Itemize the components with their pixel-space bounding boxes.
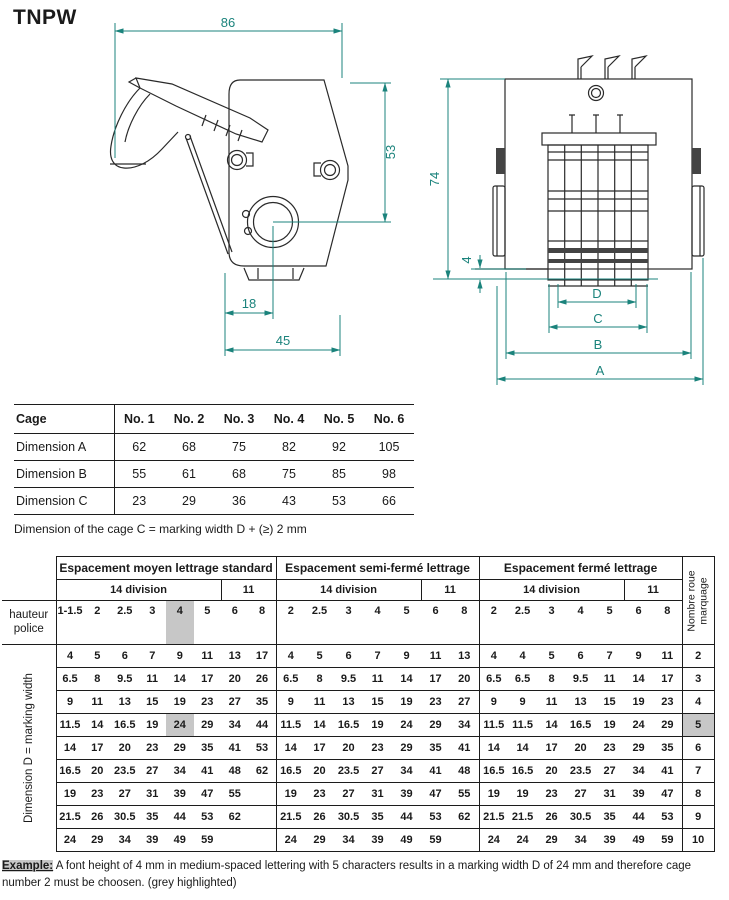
cage-row-label: Dimension C — [14, 488, 114, 515]
page-title: TNPW — [13, 6, 77, 30]
marking-width-cell: 23 — [139, 737, 167, 760]
marking-width-cell: 11.5 — [479, 714, 508, 737]
marking-width-cell: 9 — [479, 691, 508, 714]
marking-width-cell: 62 — [450, 806, 479, 829]
cage-value-cell: 29 — [164, 488, 214, 515]
section-title-row: Espacement moyen lettrage standard Espac… — [2, 557, 714, 580]
marking-width-cell: 39 — [363, 829, 392, 852]
marking-width-cell: 4 — [508, 645, 537, 668]
marking-width-cell: 14 — [56, 737, 84, 760]
cage-note: Dimension of the cage C = marking width … — [14, 522, 307, 536]
wheel-count-cell: 3 — [682, 668, 714, 691]
marking-width-cell: 59 — [653, 829, 682, 852]
marking-width-cell: 16.5 — [508, 760, 537, 783]
marking-width-cell: 19 — [139, 714, 167, 737]
marking-width-cell: 39 — [166, 783, 194, 806]
marking-width-cell: 14 — [305, 714, 334, 737]
spacer-cell — [2, 557, 56, 580]
marking-width-cell: 11 — [363, 668, 392, 691]
font-height-header-cell: 6 — [221, 601, 249, 645]
stamp-body-outline — [228, 80, 349, 280]
marking-width-cell: 23.5 — [111, 760, 139, 783]
cage-value-cell: 105 — [364, 434, 414, 461]
font-height-header-cell: 1-1.5 — [56, 601, 84, 645]
marking-width-cell: 35 — [139, 806, 167, 829]
marking-width-cell: 19 — [624, 691, 653, 714]
marking-width-row: Dimension D = marking width4567911131745… — [2, 645, 714, 668]
dim-right-height-label: 53 — [383, 145, 398, 159]
marking-width-cell: 11 — [84, 691, 112, 714]
marking-width-cell: 20 — [450, 668, 479, 691]
marking-width-cell: 16.5 — [479, 760, 508, 783]
wheel-count-cell: 2 — [682, 645, 714, 668]
cage-value-cell: 85 — [314, 461, 364, 488]
marking-width-cell: 35 — [653, 737, 682, 760]
marking-width-cell: 6.5 — [276, 668, 305, 691]
marking-width-cell: 19 — [508, 783, 537, 806]
marking-width-cell: 11 — [194, 645, 222, 668]
dim-left-height-label: 74 — [427, 172, 442, 186]
marking-width-cell: 29 — [84, 829, 112, 852]
marking-width-cell: 9.5 — [334, 668, 363, 691]
marking-width-cell: 47 — [421, 783, 450, 806]
marking-width-cell: 30.5 — [566, 806, 595, 829]
marking-width-cell: 26 — [305, 806, 334, 829]
font-height-header-cell: 8 — [653, 601, 682, 645]
font-height-axis-label: hauteur police — [2, 601, 56, 645]
marking-width-cell: 11.5 — [56, 714, 84, 737]
marking-width-cell: 9.5 — [566, 668, 595, 691]
marking-width-cell: 29 — [537, 829, 566, 852]
spacer-cell — [2, 580, 56, 601]
marking-width-cell: 62 — [249, 760, 277, 783]
font-height-header-cell: 3 — [139, 601, 167, 645]
font-height-header-cell: 8 — [249, 601, 277, 645]
marking-width-row: 6.589.511141720266.589.5111417206.56.589… — [2, 668, 714, 691]
marking-width-cell: 14 — [276, 737, 305, 760]
section-title: Espacement semi-fermé lettrage — [276, 557, 479, 580]
marking-width-cell: 34 — [392, 760, 421, 783]
marking-width-cell: 23 — [305, 783, 334, 806]
cage-value-cell: 62 — [114, 434, 164, 461]
marking-width-cell: 6.5 — [508, 668, 537, 691]
marking-width-cell: 23.5 — [566, 760, 595, 783]
font-height-header-cell: 6 — [421, 601, 450, 645]
division-group-row: 14 division 11 14 division 11 14 divisio… — [2, 580, 714, 601]
marking-width-cell: 17 — [537, 737, 566, 760]
font-height-header-cell: 8 — [450, 601, 479, 645]
marking-width-cell: 34 — [221, 714, 249, 737]
marking-width-cell: 15 — [363, 691, 392, 714]
marking-width-cell: 31 — [363, 783, 392, 806]
marking-width-cell: 48 — [221, 760, 249, 783]
marking-width-cell: 27 — [139, 760, 167, 783]
marking-width-cell: 14 — [537, 714, 566, 737]
font-height-header-cell: 6 — [624, 601, 653, 645]
marking-width-cell: 8 — [537, 668, 566, 691]
marking-width-cell: 41 — [450, 737, 479, 760]
marking-width-cell: 34 — [566, 829, 595, 852]
dim-bottom-width-label: 45 — [276, 333, 290, 348]
dim-top-width-label: 86 — [221, 18, 235, 30]
dim-c-label: C — [593, 311, 602, 326]
marking-width-cell: 23 — [194, 691, 222, 714]
marking-width-cell: 7 — [595, 645, 624, 668]
marking-width-cell: 19 — [479, 783, 508, 806]
marking-width-cell: 20 — [84, 760, 112, 783]
cage-value-cell: 66 — [364, 488, 414, 515]
marking-width-cell: 13 — [450, 645, 479, 668]
marking-width-cell: 23 — [84, 783, 112, 806]
marking-width-row: 2429343949592429343949592424293439495910 — [2, 829, 714, 852]
marking-width-cell: 29 — [392, 737, 421, 760]
marking-width-cell: 5 — [305, 645, 334, 668]
marking-width-cell: 16.5 — [334, 714, 363, 737]
wheel-count-cell: 4 — [682, 691, 714, 714]
marking-width-row: 1923273139475519232731394755191923273139… — [2, 783, 714, 806]
division-group: 14 division — [479, 580, 624, 601]
marking-width-cell: 14 — [392, 668, 421, 691]
wheel-count-cell: 9 — [682, 806, 714, 829]
marking-width-cell: 41 — [421, 760, 450, 783]
marking-width-cell: 34 — [334, 829, 363, 852]
cage-value-cell: 68 — [214, 461, 264, 488]
marking-width-cell: 21.5 — [508, 806, 537, 829]
marking-width-row: 11.51416.5192429344411.51416.51924293411… — [2, 714, 714, 737]
marking-width-cell: 6 — [111, 645, 139, 668]
marking-width-cell: 27 — [595, 760, 624, 783]
marking-width-cell: 17 — [421, 668, 450, 691]
marking-width-cell: 30.5 — [111, 806, 139, 829]
marking-width-cell: 29 — [166, 737, 194, 760]
marking-width-cell: 35 — [363, 806, 392, 829]
marking-width-cell: 59 — [194, 829, 222, 852]
division-group: 14 division — [56, 580, 221, 601]
marking-width-cell: 29 — [624, 737, 653, 760]
marking-width-cell: 34 — [111, 829, 139, 852]
marking-width-cell: 16.5 — [56, 760, 84, 783]
font-height-header-cell: 2.5 — [508, 601, 537, 645]
marking-width-cell: 24 — [479, 829, 508, 852]
marking-width-cell: 44 — [624, 806, 653, 829]
marking-width-cell: 13 — [566, 691, 595, 714]
cage-header-cell: No. 3 — [214, 405, 264, 434]
marking-width-cell: 4 — [479, 645, 508, 668]
cage-header-cell: Cage — [14, 405, 114, 434]
marking-width-cell: 35 — [249, 691, 277, 714]
marking-width-cell: 9 — [166, 645, 194, 668]
marking-width-cell: 9 — [508, 691, 537, 714]
marking-width-cell: 11 — [139, 668, 167, 691]
marking-width-cell: 17 — [194, 668, 222, 691]
marking-width-cell: 17 — [653, 668, 682, 691]
cage-value-cell: 75 — [264, 461, 314, 488]
marking-width-cell: 21.5 — [56, 806, 84, 829]
marking-width-cell: 39 — [392, 783, 421, 806]
division-group: 14 division — [276, 580, 421, 601]
section-title: Espacement moyen lettrage standard — [56, 557, 276, 580]
marking-width-cell: 11 — [537, 691, 566, 714]
marking-width-cell: 23.5 — [334, 760, 363, 783]
wheel-count-cell: 5 — [682, 714, 714, 737]
marking-width-cell: 26 — [537, 806, 566, 829]
marking-width-cell: 23 — [595, 737, 624, 760]
cage-table: Cage No. 1 No. 2 No. 3 No. 4 No. 5 No. 6… — [14, 404, 414, 515]
marking-width-cell: 34 — [166, 760, 194, 783]
marking-width-cell: 41 — [194, 760, 222, 783]
cage-row: Dimension C232936435366 — [14, 488, 414, 515]
marking-width-cell: 29 — [305, 829, 334, 852]
dimension-d-axis-cell: Dimension D = marking width — [2, 645, 56, 852]
marking-width-cell: 6.5 — [56, 668, 84, 691]
marking-width-cell — [249, 783, 277, 806]
marking-width-cell: 9 — [624, 645, 653, 668]
marking-width-cell: 20 — [305, 760, 334, 783]
marking-width-cell: 23 — [421, 691, 450, 714]
marking-width-cell: 31 — [139, 783, 167, 806]
marking-width-cell: 24 — [166, 714, 194, 737]
marking-width-cell: 14 — [479, 737, 508, 760]
marking-width-cell: 53 — [194, 806, 222, 829]
marking-width-cell: 6 — [566, 645, 595, 668]
marking-width-cell: 53 — [249, 737, 277, 760]
font-height-header-cell: 5 — [194, 601, 222, 645]
wheel-count-cell: 6 — [682, 737, 714, 760]
marking-width-cell: 4 — [56, 645, 84, 668]
marking-width-cell: 13 — [334, 691, 363, 714]
marking-width-cell: 9.5 — [111, 668, 139, 691]
marking-width-cell: 16.5 — [111, 714, 139, 737]
cage-row: Dimension A6268758292105 — [14, 434, 414, 461]
marking-width-cell: 47 — [194, 783, 222, 806]
marking-width-cell: 19 — [363, 714, 392, 737]
drawing-front-view: 74 4 D C B A — [426, 36, 726, 398]
spacing-table-body: Dimension D = marking width4567911131745… — [2, 645, 714, 852]
marking-width-cell: 19 — [276, 783, 305, 806]
marking-width-cell: 20 — [221, 668, 249, 691]
marking-width-cell: 34 — [450, 714, 479, 737]
cage-value-cell: 82 — [264, 434, 314, 461]
marking-width-cell: 39 — [624, 783, 653, 806]
marking-width-cell: 19 — [166, 691, 194, 714]
font-height-header-cell: 2 — [84, 601, 112, 645]
division-group: 11 — [421, 580, 479, 601]
wheel-count-header: Nombre roue marquage — [682, 557, 714, 645]
marking-width-row: 9111315192327359111315192327991113151923… — [2, 691, 714, 714]
cage-header-cell: No. 6 — [364, 405, 414, 434]
marking-width-cell: 23 — [653, 691, 682, 714]
marking-width-cell: 27 — [450, 691, 479, 714]
marking-width-cell: 27 — [363, 760, 392, 783]
marking-width-cell: 14 — [166, 668, 194, 691]
dim-d-label: D — [592, 286, 601, 301]
marking-width-cell: 11.5 — [508, 714, 537, 737]
marking-width-cell: 35 — [595, 806, 624, 829]
marking-width-cell: 14 — [624, 668, 653, 691]
font-height-header-cell: 4 — [166, 601, 194, 645]
marking-width-cell: 20 — [334, 737, 363, 760]
marking-width-cell — [450, 829, 479, 852]
marking-width-cell: 48 — [450, 760, 479, 783]
marking-width-cell: 39 — [139, 829, 167, 852]
cage-row: Dimension B556168758598 — [14, 461, 414, 488]
marking-width-cell: 19 — [595, 714, 624, 737]
marking-width-cell: 27 — [334, 783, 363, 806]
font-height-row: hauteur police 1-1.522.53456822.53456822… — [2, 601, 714, 645]
marking-width-cell: 62 — [221, 806, 249, 829]
marking-width-cell: 49 — [624, 829, 653, 852]
font-height-header-cell: 4 — [566, 601, 595, 645]
font-height-header-cell: 3 — [334, 601, 363, 645]
font-height-header-cell: 2 — [276, 601, 305, 645]
cage-row-label: Dimension B — [14, 461, 114, 488]
marking-width-cell: 24 — [508, 829, 537, 852]
example-text: A font height of 4 mm in medium-spaced l… — [2, 860, 691, 889]
marking-width-cell: 16.5 — [566, 714, 595, 737]
cage-header-cell: No. 2 — [164, 405, 214, 434]
marking-width-cell: 41 — [221, 737, 249, 760]
marking-width-cell: 20 — [537, 760, 566, 783]
marking-width-cell: 7 — [363, 645, 392, 668]
font-height-header-cell: 3 — [537, 601, 566, 645]
section-title: Espacement fermé lettrage — [479, 557, 682, 580]
marking-width-cell: 8 — [305, 668, 334, 691]
marking-width-cell: 47 — [653, 783, 682, 806]
marking-width-cell: 9 — [392, 645, 421, 668]
cage-value-cell: 92 — [314, 434, 364, 461]
marking-width-cell: 53 — [421, 806, 450, 829]
cage-header-cell: No. 5 — [314, 405, 364, 434]
cage-value-cell: 23 — [114, 488, 164, 515]
cage-value-cell: 43 — [264, 488, 314, 515]
wheel-count-cell: 10 — [682, 829, 714, 852]
marking-width-cell: 26 — [84, 806, 112, 829]
dim-b-label: B — [594, 337, 603, 352]
font-height-header-cell: 2 — [479, 601, 508, 645]
dim-bottom-offset-label: 18 — [242, 296, 256, 311]
example-label: Example: — [2, 860, 53, 872]
marking-width-cell: 23 — [537, 783, 566, 806]
marking-width-cell: 27 — [221, 691, 249, 714]
dimension-d-axis-label: Dimension D = marking width — [23, 673, 35, 823]
marking-width-cell: 5 — [84, 645, 112, 668]
marking-width-cell: 14 — [84, 714, 112, 737]
cage-value-cell: 75 — [214, 434, 264, 461]
marking-width-cell: 4 — [276, 645, 305, 668]
marking-width-row: 16.52023.5273441486216.52023.52734414816… — [2, 760, 714, 783]
font-height-header-cell: 5 — [392, 601, 421, 645]
marking-width-cell: 26 — [249, 668, 277, 691]
marking-width-cell: 15 — [139, 691, 167, 714]
marking-width-cell: 11.5 — [276, 714, 305, 737]
cage-value-cell: 53 — [314, 488, 364, 515]
marking-width-cell: 11 — [653, 645, 682, 668]
marking-width-row: 1417202329354153141720232935411414172023… — [2, 737, 714, 760]
division-group: 11 — [221, 580, 276, 601]
marking-width-cell: 14 — [508, 737, 537, 760]
cage-row-label: Dimension A — [14, 434, 114, 461]
cage-value-cell: 98 — [364, 461, 414, 488]
marking-width-cell — [249, 829, 277, 852]
marking-width-cell: 6.5 — [479, 668, 508, 691]
cage-header-cell: No. 4 — [264, 405, 314, 434]
cage-value-cell: 55 — [114, 461, 164, 488]
marking-width-cell: 13 — [111, 691, 139, 714]
marking-width-cell: 49 — [166, 829, 194, 852]
drawing-side-view: 86 53 18 45 — [88, 18, 433, 396]
marking-width-cell: 27 — [111, 783, 139, 806]
marking-width-cell: 21.5 — [276, 806, 305, 829]
cage-header-cell: No. 1 — [114, 405, 164, 434]
cage-header-row: Cage No. 1 No. 2 No. 3 No. 4 No. 5 No. 6 — [14, 405, 414, 434]
division-group: 11 — [624, 580, 682, 601]
marking-width-cell: 29 — [653, 714, 682, 737]
marking-width-cell: 44 — [249, 714, 277, 737]
marking-width-cell: 17 — [249, 645, 277, 668]
wheel-count-cell: 7 — [682, 760, 714, 783]
wheel-count-header-label: Nombre roue marquage — [687, 568, 710, 634]
wheel-count-cell: 8 — [682, 783, 714, 806]
marking-width-cell: 19 — [56, 783, 84, 806]
dimension-lines — [433, 79, 703, 385]
marking-width-cell — [249, 806, 277, 829]
example-note: Example: A font height of 4 mm in medium… — [2, 858, 726, 891]
cage-value-cell: 68 — [164, 434, 214, 461]
marking-width-cell — [221, 829, 249, 852]
marking-width-cell: 9 — [56, 691, 84, 714]
marking-width-cell: 55 — [450, 783, 479, 806]
marking-width-cell: 55 — [221, 783, 249, 806]
marking-width-cell: 17 — [84, 737, 112, 760]
marking-width-cell: 16.5 — [276, 760, 305, 783]
marking-width-cell: 9 — [276, 691, 305, 714]
marking-width-cell: 27 — [566, 783, 595, 806]
datasheet-page: TNPW — [0, 0, 729, 900]
marking-width-cell: 23 — [363, 737, 392, 760]
marking-width-cell: 53 — [653, 806, 682, 829]
marking-width-cell: 11 — [595, 668, 624, 691]
marking-width-cell: 35 — [194, 737, 222, 760]
marking-width-cell: 20 — [111, 737, 139, 760]
marking-width-cell: 31 — [595, 783, 624, 806]
marking-width-cell: 11 — [421, 645, 450, 668]
marking-width-cell: 5 — [537, 645, 566, 668]
marking-width-cell: 30.5 — [334, 806, 363, 829]
marking-width-cell: 13 — [221, 645, 249, 668]
marking-width-cell: 19 — [392, 691, 421, 714]
marking-width-cell: 24 — [56, 829, 84, 852]
marking-width-cell: 24 — [276, 829, 305, 852]
marking-width-cell: 7 — [139, 645, 167, 668]
marking-width-row: 21.52630.53544536221.52630.53544536221.5… — [2, 806, 714, 829]
cage-value-cell: 61 — [164, 461, 214, 488]
marking-width-cell: 24 — [624, 714, 653, 737]
spacing-table: Espacement moyen lettrage standard Espac… — [2, 556, 715, 852]
cage-value-cell: 36 — [214, 488, 264, 515]
marking-width-cell: 41 — [653, 760, 682, 783]
marking-width-cell: 39 — [595, 829, 624, 852]
marking-width-cell: 11 — [305, 691, 334, 714]
font-height-header-cell: 5 — [595, 601, 624, 645]
marking-width-cell: 59 — [421, 829, 450, 852]
marking-width-cell: 15 — [595, 691, 624, 714]
marking-width-cell: 49 — [392, 829, 421, 852]
marking-width-cell: 44 — [166, 806, 194, 829]
cage-table-body: Dimension A6268758292105Dimension B55616… — [14, 434, 414, 515]
marking-width-cell: 8 — [84, 668, 112, 691]
dim-protrusion-label: 4 — [459, 256, 474, 263]
marking-width-cell: 6 — [334, 645, 363, 668]
